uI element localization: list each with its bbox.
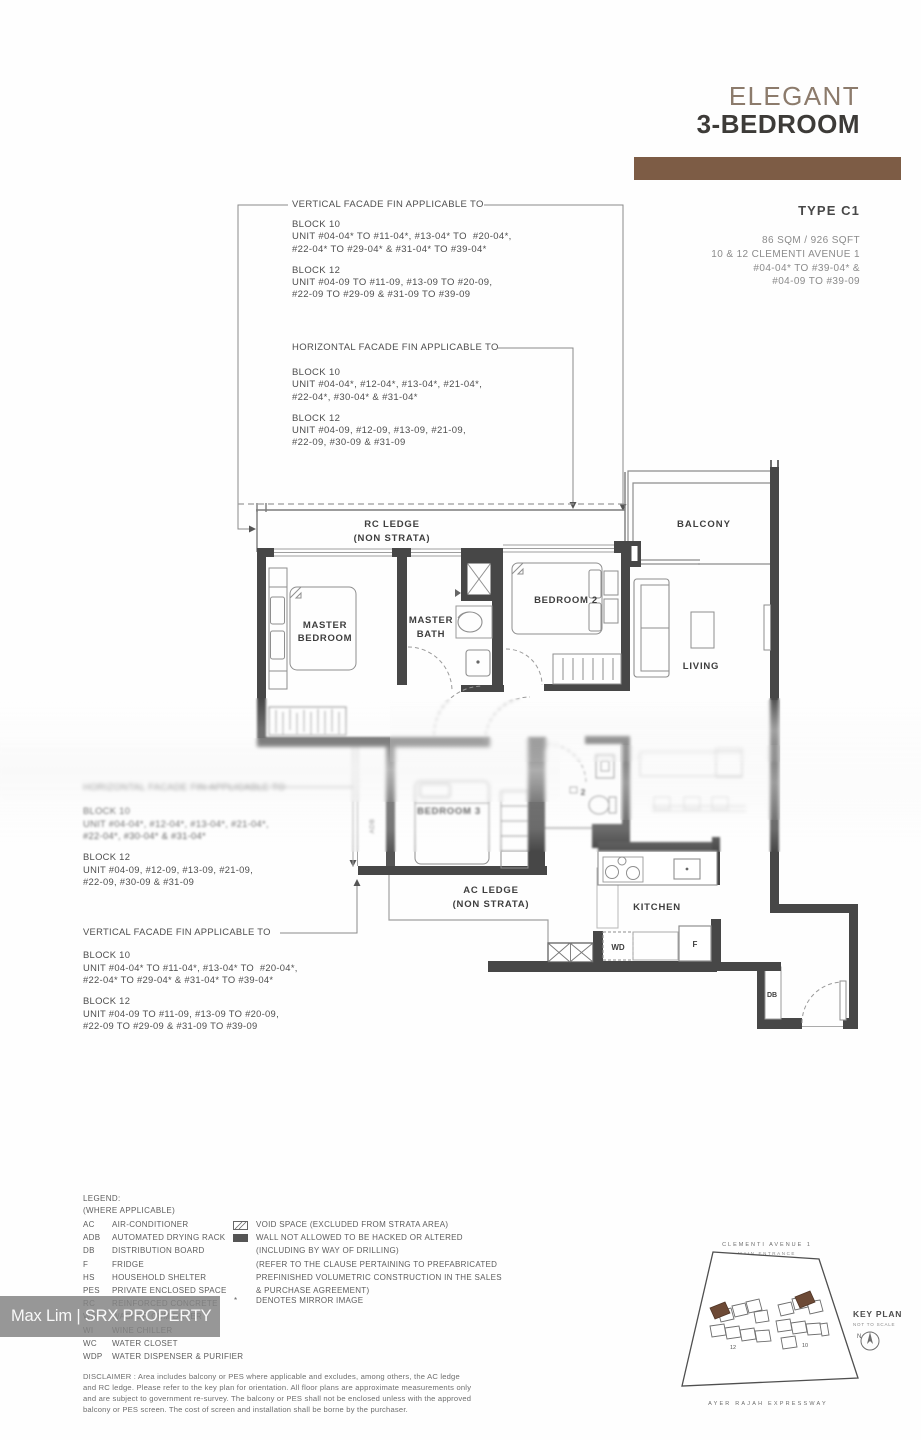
svg-text:BALCONY: BALCONY — [677, 519, 731, 530]
svg-text:NOT TO SCALE: NOT TO SCALE — [853, 1322, 895, 1327]
svg-text:N: N — [857, 1334, 861, 1340]
svg-text:WD: WD — [611, 943, 625, 952]
svg-text:BEDROOM 2: BEDROOM 2 — [534, 595, 598, 606]
svg-text:12: 12 — [730, 1345, 736, 1351]
svg-text:RC LEDGE: RC LEDGE — [364, 519, 420, 530]
svg-text:KEY PLAN: KEY PLAN — [853, 1309, 902, 1319]
svg-text:MASTER: MASTER — [303, 620, 347, 631]
svg-text:MASTER: MASTER — [409, 615, 453, 626]
svg-text:(NON STRATA): (NON STRATA) — [354, 533, 431, 544]
svg-text:10: 10 — [802, 1343, 808, 1349]
svg-text:BATH: BATH — [417, 629, 445, 640]
svg-text:AYER RAJAH EXPRESSWAY: AYER RAJAH EXPRESSWAY — [708, 1401, 828, 1407]
svg-text:CLEMENTI AVENUE 1: CLEMENTI AVENUE 1 — [722, 1242, 812, 1248]
svg-text:F: F — [693, 940, 698, 949]
svg-text:LIVING: LIVING — [683, 661, 719, 672]
svg-text:DB: DB — [767, 992, 777, 999]
svg-text:KITCHEN: KITCHEN — [633, 902, 681, 913]
svg-text:AC LEDGE: AC LEDGE — [463, 885, 519, 896]
svg-text:BEDROOM: BEDROOM — [298, 633, 353, 644]
svg-text:(NON STRATA): (NON STRATA) — [453, 899, 530, 910]
